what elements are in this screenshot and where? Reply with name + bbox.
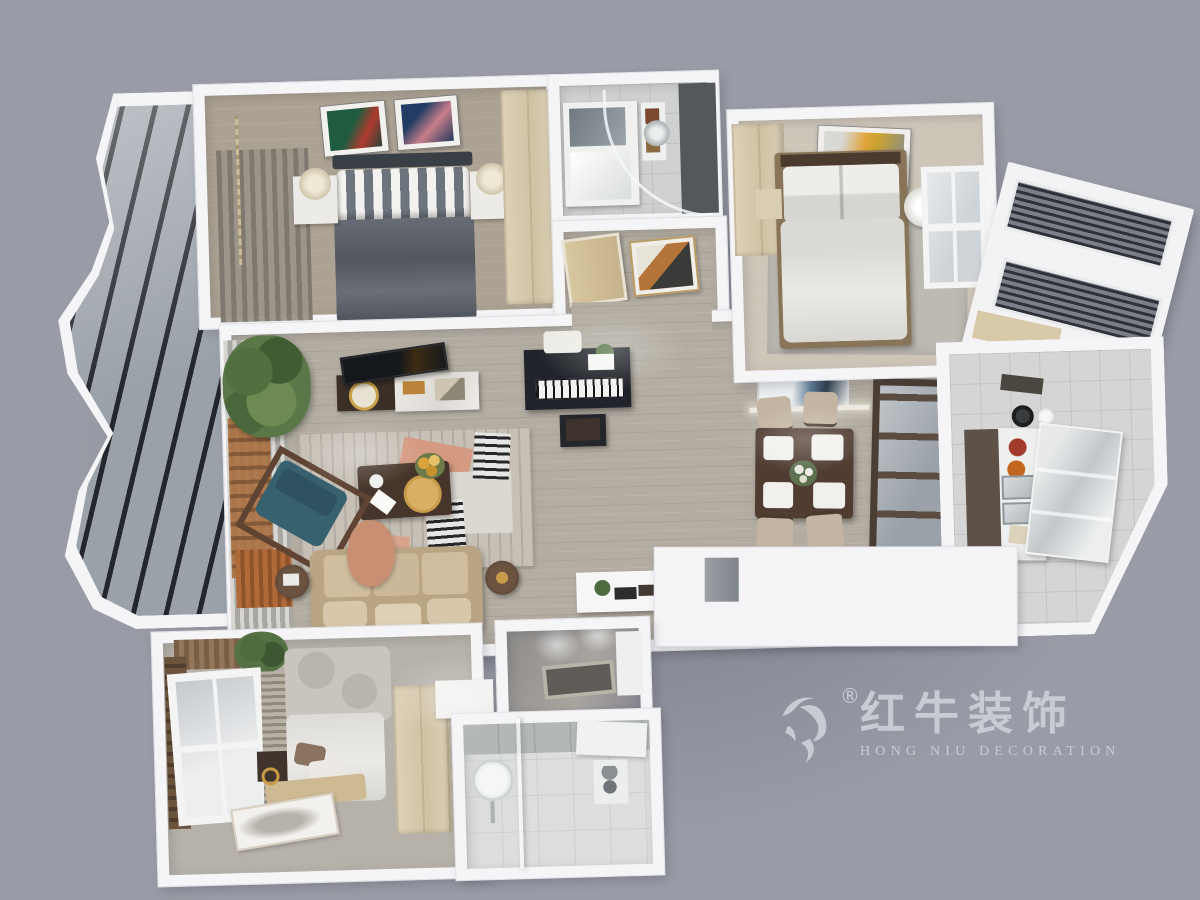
- artwork-pink-navy-canvas: [401, 101, 454, 145]
- master-bed-duvet: [334, 216, 477, 323]
- kitchen-glass-cabinet: [1025, 423, 1123, 564]
- piano-top-pillow: [543, 330, 582, 353]
- third-bed-headboard: [284, 646, 392, 723]
- sofa-cushion-3: [421, 552, 468, 595]
- console-prints: [435, 378, 466, 401]
- entry-artwork-geometric: [629, 235, 700, 297]
- second-bed-duvet: [780, 217, 907, 342]
- piano-keys: [536, 377, 625, 399]
- plant-large: [221, 334, 312, 438]
- console-books: [403, 381, 425, 395]
- entry-artwork-canvas: [635, 242, 693, 291]
- third-window: [167, 667, 273, 826]
- brand-name-chinese: 红牛装饰: [860, 688, 1121, 740]
- walkin-vanity: [616, 631, 644, 696]
- watermark-text: 红牛装饰 HONG NIU DECORATION: [860, 688, 1121, 760]
- registered-mark: ®: [840, 684, 860, 708]
- mirror-stand: [490, 801, 495, 823]
- watermark: ® 红牛装饰 HONG NIU DECORATION: [778, 688, 1108, 780]
- piano-bench: [560, 414, 607, 447]
- tv-console-marble: [394, 371, 479, 411]
- bull-head: [800, 705, 827, 741]
- gray-appliance: [705, 558, 739, 602]
- lower-vanity: [576, 720, 647, 757]
- dining-chair-2: [803, 391, 838, 427]
- entry-opening-patch: [571, 299, 712, 335]
- second-window: [921, 165, 988, 289]
- stool-gold-decor: [496, 572, 508, 584]
- sofa-pillow-1: [323, 601, 368, 628]
- kitchen-dark-cabinet: [964, 429, 1001, 552]
- bull-leg: [785, 726, 795, 742]
- place-setting-4: [813, 482, 845, 508]
- second-nightstand: [755, 189, 782, 220]
- master-bed-pillows: [337, 167, 470, 221]
- lower-toiletries: [599, 766, 620, 797]
- entry-door: [561, 233, 627, 308]
- recessed-tub: [541, 659, 616, 700]
- brand-name-english: HONG NIU DECORATION: [860, 744, 1121, 760]
- stand-plant: [594, 580, 610, 596]
- place-setting-3: [763, 482, 793, 508]
- piano-sheet-paper: [588, 354, 614, 371]
- island-wall-band: [655, 547, 1017, 646]
- place-setting-2: [811, 434, 843, 460]
- second-bed-pillows: [783, 164, 901, 223]
- bull-tail: [801, 739, 814, 763]
- artwork-green-red: [319, 100, 390, 158]
- piano-bench-top: [566, 418, 601, 441]
- table-centerpiece: [789, 460, 817, 486]
- dining-chair-4: [805, 510, 844, 550]
- master-curtain: [216, 148, 313, 323]
- floorplan-render: ® 红牛装饰 HONG NIU DECORATION: [0, 0, 1200, 900]
- dining-table: [755, 428, 854, 519]
- stool-papers: [283, 573, 299, 585]
- stand-black-device: [614, 587, 636, 600]
- place-setting-1: [763, 436, 793, 460]
- gold-tray: [349, 380, 380, 411]
- louver-panel-1: [1004, 178, 1176, 269]
- rug-black-stripes: [473, 432, 511, 479]
- artwork-green-red-canvas: [327, 106, 383, 151]
- artwork-pink-navy: [393, 94, 461, 151]
- white-tv-stand: [576, 570, 661, 612]
- sofa-pillow-3: [427, 598, 472, 625]
